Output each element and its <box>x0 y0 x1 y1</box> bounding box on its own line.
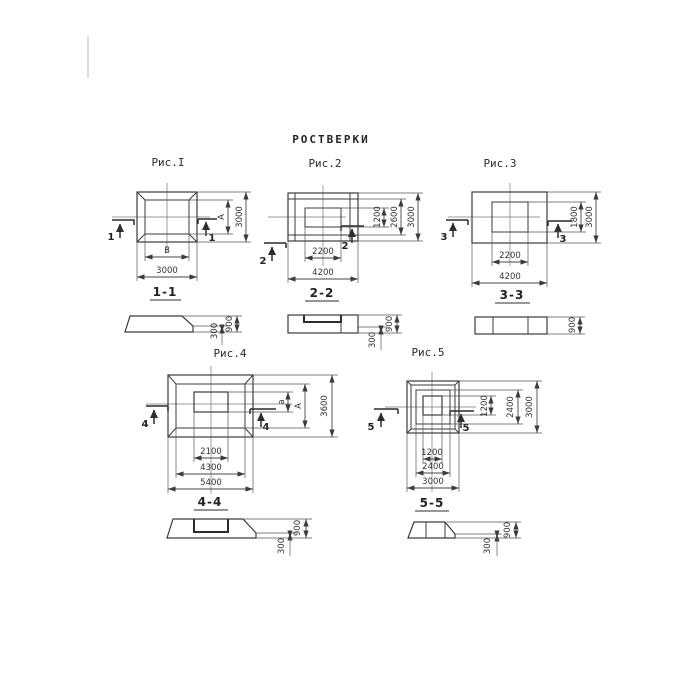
dim-edge-height: 300 <box>368 332 378 348</box>
dim-edge-height: 300 <box>210 323 220 339</box>
fig5-plan: 5 5 1200 2400 3000 1200 2400 3000 <box>368 372 542 492</box>
section-notch <box>304 315 341 322</box>
section-notch <box>194 519 228 532</box>
section-label: 5-5 <box>420 496 445 510</box>
dim-outer-height: 3000 <box>525 396 535 418</box>
cut-mark-label-left: 1 <box>108 232 115 243</box>
dim-outer-width: 4200 <box>499 272 521 282</box>
section-profile <box>288 315 358 333</box>
cut-line-left <box>374 409 398 414</box>
fig5-section-view: 900 300 <box>408 522 521 556</box>
cut-mark-label-right: 2 <box>342 241 349 252</box>
leader-lines <box>358 315 402 333</box>
fig3: Рис.3 3 3 1800 3000 2200 4200 3-3 <box>441 157 601 334</box>
dim-mid-height: 2600 <box>390 206 400 228</box>
dim-mid-width: 4300 <box>200 463 222 473</box>
dim-mid-height: A <box>294 403 304 409</box>
drawing-canvas: РОСТВЕРКИ Рис.I 1 1 A 3000 B 3000 1-1 <box>0 0 700 700</box>
centerlines <box>448 183 540 266</box>
dim-edge-height: 300 <box>483 538 493 554</box>
plan-outer-rect <box>472 192 547 243</box>
section-profile <box>408 522 455 538</box>
dim-inner-width: 2200 <box>312 247 334 257</box>
section-label: 4-4 <box>198 495 223 509</box>
dim-inner-height: 1800 <box>570 206 580 228</box>
dim-total-height: 900 <box>225 316 235 332</box>
fig4-plan: 4 4 a A 3600 2100 4300 5400 <box>142 366 338 494</box>
dim-inner-width: 1200 <box>421 448 443 458</box>
cut-mark-label-left: 5 <box>368 422 375 433</box>
cut-line-left <box>264 243 286 248</box>
cut-line-right <box>250 409 276 414</box>
dim-edge-height: 300 <box>277 538 287 554</box>
dim-outer-height: 3000 <box>235 206 245 228</box>
fig5: Рис.5 5 5 1200 2400 3000 1200 2400 <box>368 346 542 556</box>
dim-outer-height: 3600 <box>320 395 330 417</box>
dim-total-height: 900 <box>568 317 578 333</box>
section-profile <box>167 519 256 538</box>
centerlines <box>268 185 346 266</box>
fig4: Рис.4 4 4 a A 3600 2100 4300 5400 <box>142 347 338 556</box>
fig2-section-view: 900 300 <box>288 315 402 350</box>
cut-line-right <box>548 221 572 226</box>
dim-outer-width: 4200 <box>312 268 334 278</box>
dim-outer-height: 3000 <box>407 206 417 228</box>
fig1-section-view: 900 300 <box>125 316 242 345</box>
extension-lines <box>407 381 542 492</box>
section-profile <box>475 317 547 334</box>
cut-line-left <box>146 406 168 411</box>
dim-inner-width: 2100 <box>200 447 222 457</box>
plan-mid-rect <box>176 384 245 428</box>
scanned-drawing-sheet: РОСТВЕРКИ Рис.I 1 1 A 3000 B 3000 1-1 <box>0 0 700 700</box>
figure-label: Рис.2 <box>308 157 341 170</box>
cut-mark-label-right: 5 <box>463 423 470 434</box>
fig2: Рис.2 2 2 1200 2600 3000 2200 4200 2-2 <box>260 157 423 350</box>
extension-lines <box>137 192 251 281</box>
dim-inner-height: 1200 <box>373 206 383 228</box>
fig2-plan: 2 2 1200 2600 3000 2200 4200 <box>260 185 423 283</box>
dim-total-height: 900 <box>293 520 303 536</box>
figure-label: Рис.I <box>151 156 184 169</box>
section-divisions <box>426 522 445 538</box>
dim-mid-height: 2400 <box>506 396 516 418</box>
cut-mark-label-left: 2 <box>260 256 267 267</box>
dim-inner-height: 1200 <box>480 395 490 417</box>
cut-mark-label-right: 4 <box>263 422 270 433</box>
dim-mid-width: 2400 <box>422 462 444 472</box>
dim-outer-width: 3000 <box>156 266 178 276</box>
dim-total-height: 900 <box>385 316 395 332</box>
cut-line-right <box>198 219 217 224</box>
fig3-section-view: 900 <box>475 317 585 334</box>
fig4-section-view: 900 300 <box>167 519 312 556</box>
section-label: 1-1 <box>153 285 178 299</box>
leader-lines <box>547 317 585 334</box>
dim-outer-width: 3000 <box>422 477 444 487</box>
fig1: Рис.I 1 1 A 3000 B 3000 1-1 <box>108 156 251 345</box>
sheet-title: РОСТВЕРКИ <box>292 133 370 146</box>
dim-inner-width: 2200 <box>499 251 521 261</box>
figure-label: Рис.5 <box>411 346 444 359</box>
extension-lines <box>472 192 601 287</box>
fig3-plan: 3 3 1800 3000 2200 4200 <box>441 183 601 287</box>
cut-mark-label-left: 4 <box>142 419 149 430</box>
plan-inner-rect <box>423 396 442 415</box>
figure-label: Рис.4 <box>213 347 246 360</box>
dim-total-height: 900 <box>503 522 513 538</box>
cut-line-left <box>112 220 134 225</box>
section-divisions <box>493 317 528 334</box>
dim-inner-height: a <box>277 399 287 404</box>
extension-lines <box>288 193 423 283</box>
figure-label: Рис.3 <box>483 157 516 170</box>
dim-outer-width: 5400 <box>200 478 222 488</box>
fig1-plan: 1 1 A 3000 B 3000 <box>108 183 251 281</box>
section-profile <box>125 316 193 332</box>
cut-line-left <box>446 220 468 225</box>
dim-outer-height: 3000 <box>585 206 595 228</box>
section-label: 3-3 <box>500 288 525 302</box>
cut-mark-label-left: 3 <box>441 232 448 243</box>
section-label: 2-2 <box>310 286 335 300</box>
dim-inner-width: B <box>164 246 170 256</box>
dim-inner-height: A <box>217 214 227 220</box>
